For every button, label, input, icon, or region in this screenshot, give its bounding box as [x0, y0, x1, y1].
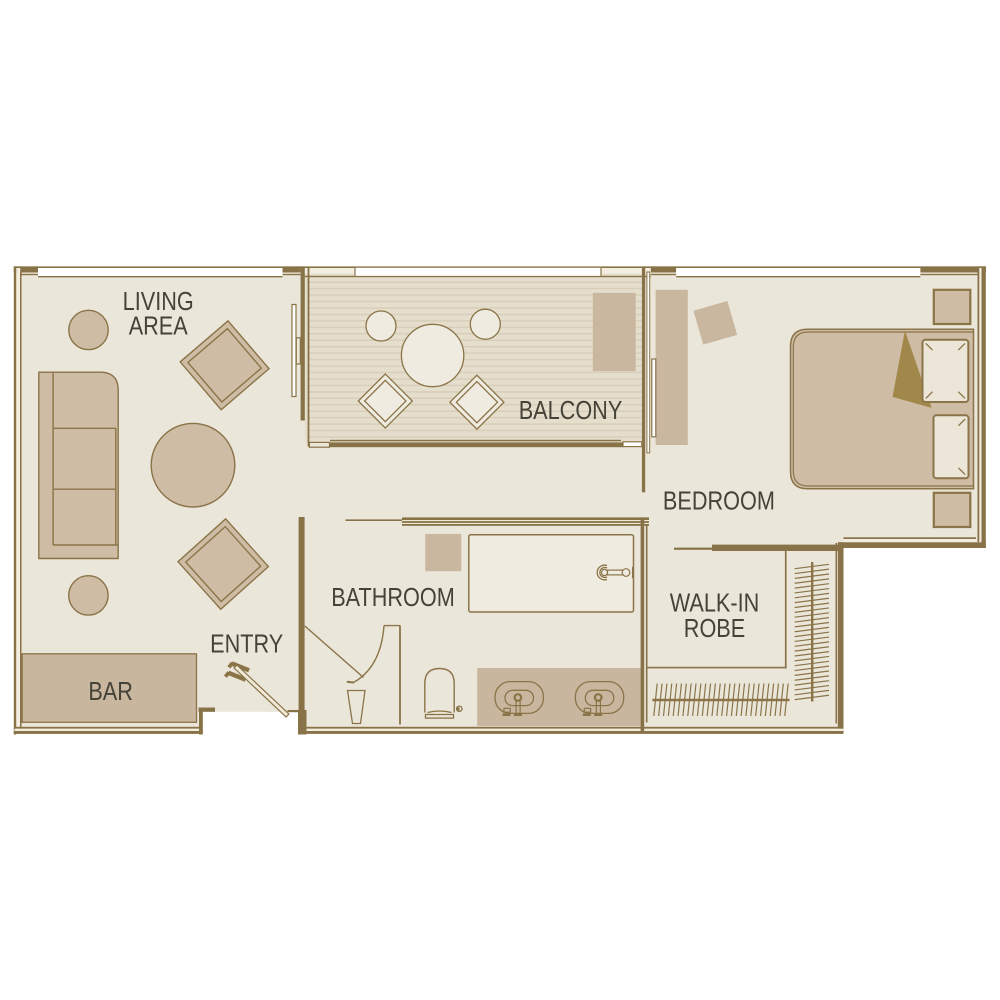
svg-text:AREA: AREA: [129, 313, 188, 341]
svg-text:BEDROOM: BEDROOM: [663, 488, 775, 516]
svg-text:BAR: BAR: [88, 678, 133, 706]
svg-text:ENTRY: ENTRY: [210, 631, 283, 659]
svg-text:BALCONY: BALCONY: [519, 397, 623, 425]
svg-text:WALK-IN: WALK-IN: [670, 590, 759, 618]
svg-text:BATHROOM: BATHROOM: [331, 584, 455, 612]
svg-text:ROBE: ROBE: [684, 615, 745, 643]
